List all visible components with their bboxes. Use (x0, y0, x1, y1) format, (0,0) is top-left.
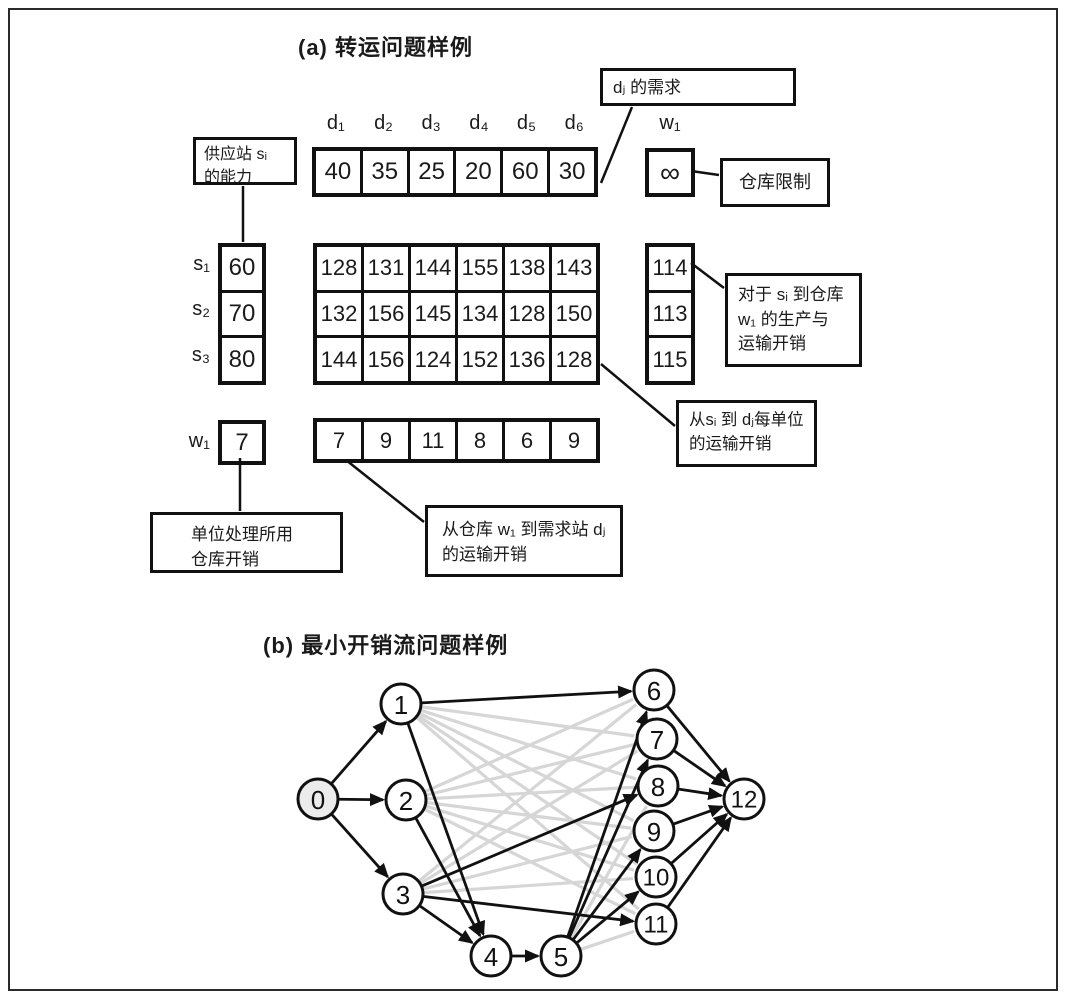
warehouse-capacity-box: ∞ (645, 148, 695, 197)
demand-header: d₅ (503, 112, 551, 135)
prod-cost-callout: 对于 sᵢ 到仓库 w₁ 的生产与 运输开销 (725, 273, 862, 367)
cost-matrix: 1281311441551381431321561451341281501441… (313, 243, 600, 385)
cost-matrix-cell: 131 (364, 247, 408, 290)
demand-header: d₃ (407, 112, 455, 135)
supply-value-cell: 70 (222, 293, 262, 336)
cost-matrix-cell: 144 (317, 338, 361, 381)
cost-matrix-cell: 145 (411, 293, 455, 336)
unit-cost-line2: 的运输开销 (689, 433, 804, 457)
warehouse-cost-column: 114113115 (645, 243, 695, 385)
demand-header: d₁ (312, 112, 360, 135)
cost-matrix-cell: 124 (411, 338, 455, 381)
warehouse-demand-cost-cell: 6 (505, 422, 549, 459)
warehouse-unit-cost-box: 7 (218, 420, 266, 465)
cost-matrix-cell: 128 (505, 293, 549, 336)
warehouse-demand-cost-cell: 9 (364, 422, 408, 459)
supply-label: s₂ (168, 298, 210, 321)
warehouse-demand-cost-cell: 7 (317, 422, 361, 459)
demand-value-cell: 35 (363, 151, 407, 193)
w-to-d-line1: 从仓库 w₁ 到需求站 dⱼ (442, 518, 610, 543)
cost-matrix-cell: 152 (458, 338, 502, 381)
cost-matrix-cell: 128 (552, 338, 596, 381)
warehouse-cost-cell: 113 (649, 293, 691, 336)
cost-matrix-cell: 134 (458, 293, 502, 336)
warehouse-demand-cost-cell: 8 (458, 422, 502, 459)
warehouse-unit-callout: 单位处理所用 仓库开销 (150, 512, 343, 573)
cost-matrix-cell: 138 (505, 247, 549, 290)
unit-cost-line1: 从sᵢ 到 dⱼ每单位 (689, 409, 804, 433)
warehouse-demand-cost-cell: 11 (411, 422, 455, 459)
supply-callout-line1: 供应站 sᵢ (204, 143, 286, 166)
cost-matrix-cell: 128 (317, 247, 361, 290)
supply-callout: 供应站 sᵢ 的能力 (193, 137, 297, 185)
prod-cost-line3: 运输开销 (738, 332, 849, 357)
cost-matrix-cell: 132 (317, 293, 361, 336)
warehouse-demand-row: 7911869 (313, 418, 600, 463)
supply-value-cell: 80 (222, 338, 262, 381)
warehouse-row-label: w₁ (168, 430, 210, 453)
demand-callout-text: dⱼ 的需求 (613, 76, 783, 101)
cost-matrix-cell: 144 (411, 247, 455, 290)
warehouse-cost-cell: 115 (649, 338, 691, 381)
w-to-d-callout: 从仓库 w₁ 到需求站 dⱼ 的运输开销 (425, 505, 623, 577)
cost-matrix-cell: 143 (552, 247, 596, 290)
warehouse-limit-text: 仓库限制 (739, 169, 811, 195)
supply-value-cell: 60 (222, 247, 262, 290)
cost-matrix-cell: 156 (364, 338, 408, 381)
supply-label: s₃ (168, 344, 210, 367)
demand-header-row: d₁d₂d₃d₄d₅d₆ (312, 112, 598, 135)
warehouse-unit-line1: 单位处理所用 (191, 523, 330, 548)
demand-callout: dⱼ 的需求 (600, 68, 796, 106)
section-a-title: (a) 转运问题样例 (298, 30, 473, 62)
warehouse-unit-line2: 仓库开销 (191, 548, 330, 573)
demand-value-cell: 20 (456, 151, 500, 193)
supply-callout-line2: 的能力 (204, 166, 286, 189)
figure-canvas: (a) 转运问题样例 dⱼ 的需求 供应站 sᵢ 的能力 d₁d₂d₃d₄d₅d… (0, 0, 1066, 999)
section-b-title: (b) 最小开销流问题样例 (263, 628, 508, 660)
supply-column: 607080 (218, 243, 266, 385)
demand-value-cell: 40 (316, 151, 360, 193)
cost-matrix-cell: 156 (364, 293, 408, 336)
prod-cost-line1: 对于 sᵢ 到仓库 (738, 283, 849, 308)
cost-matrix-cell: 155 (458, 247, 502, 290)
w-to-d-line2: 的运输开销 (442, 543, 610, 568)
prod-cost-line2: w₁ 的生产与 (738, 308, 849, 333)
supply-label: s₁ (168, 253, 210, 276)
warehouse-limit-callout: 仓库限制 (720, 158, 830, 207)
cost-matrix-cell: 150 (552, 293, 596, 336)
unit-cost-callout: 从sᵢ 到 dⱼ每单位 的运输开销 (676, 400, 817, 467)
cost-matrix-cell: 136 (505, 338, 549, 381)
demand-header: d₄ (455, 112, 503, 135)
demand-value-cell: 60 (503, 151, 547, 193)
warehouse-demand-cost-cell: 9 (552, 422, 596, 459)
demand-values-row: 403525206030 (312, 147, 598, 197)
warehouse-cost-cell: 114 (649, 247, 691, 290)
warehouse-header: w₁ (645, 112, 695, 135)
demand-value-cell: 25 (410, 151, 454, 193)
demand-value-cell: 30 (550, 151, 594, 193)
demand-header: d₂ (360, 112, 408, 135)
demand-header: d₆ (550, 112, 598, 135)
